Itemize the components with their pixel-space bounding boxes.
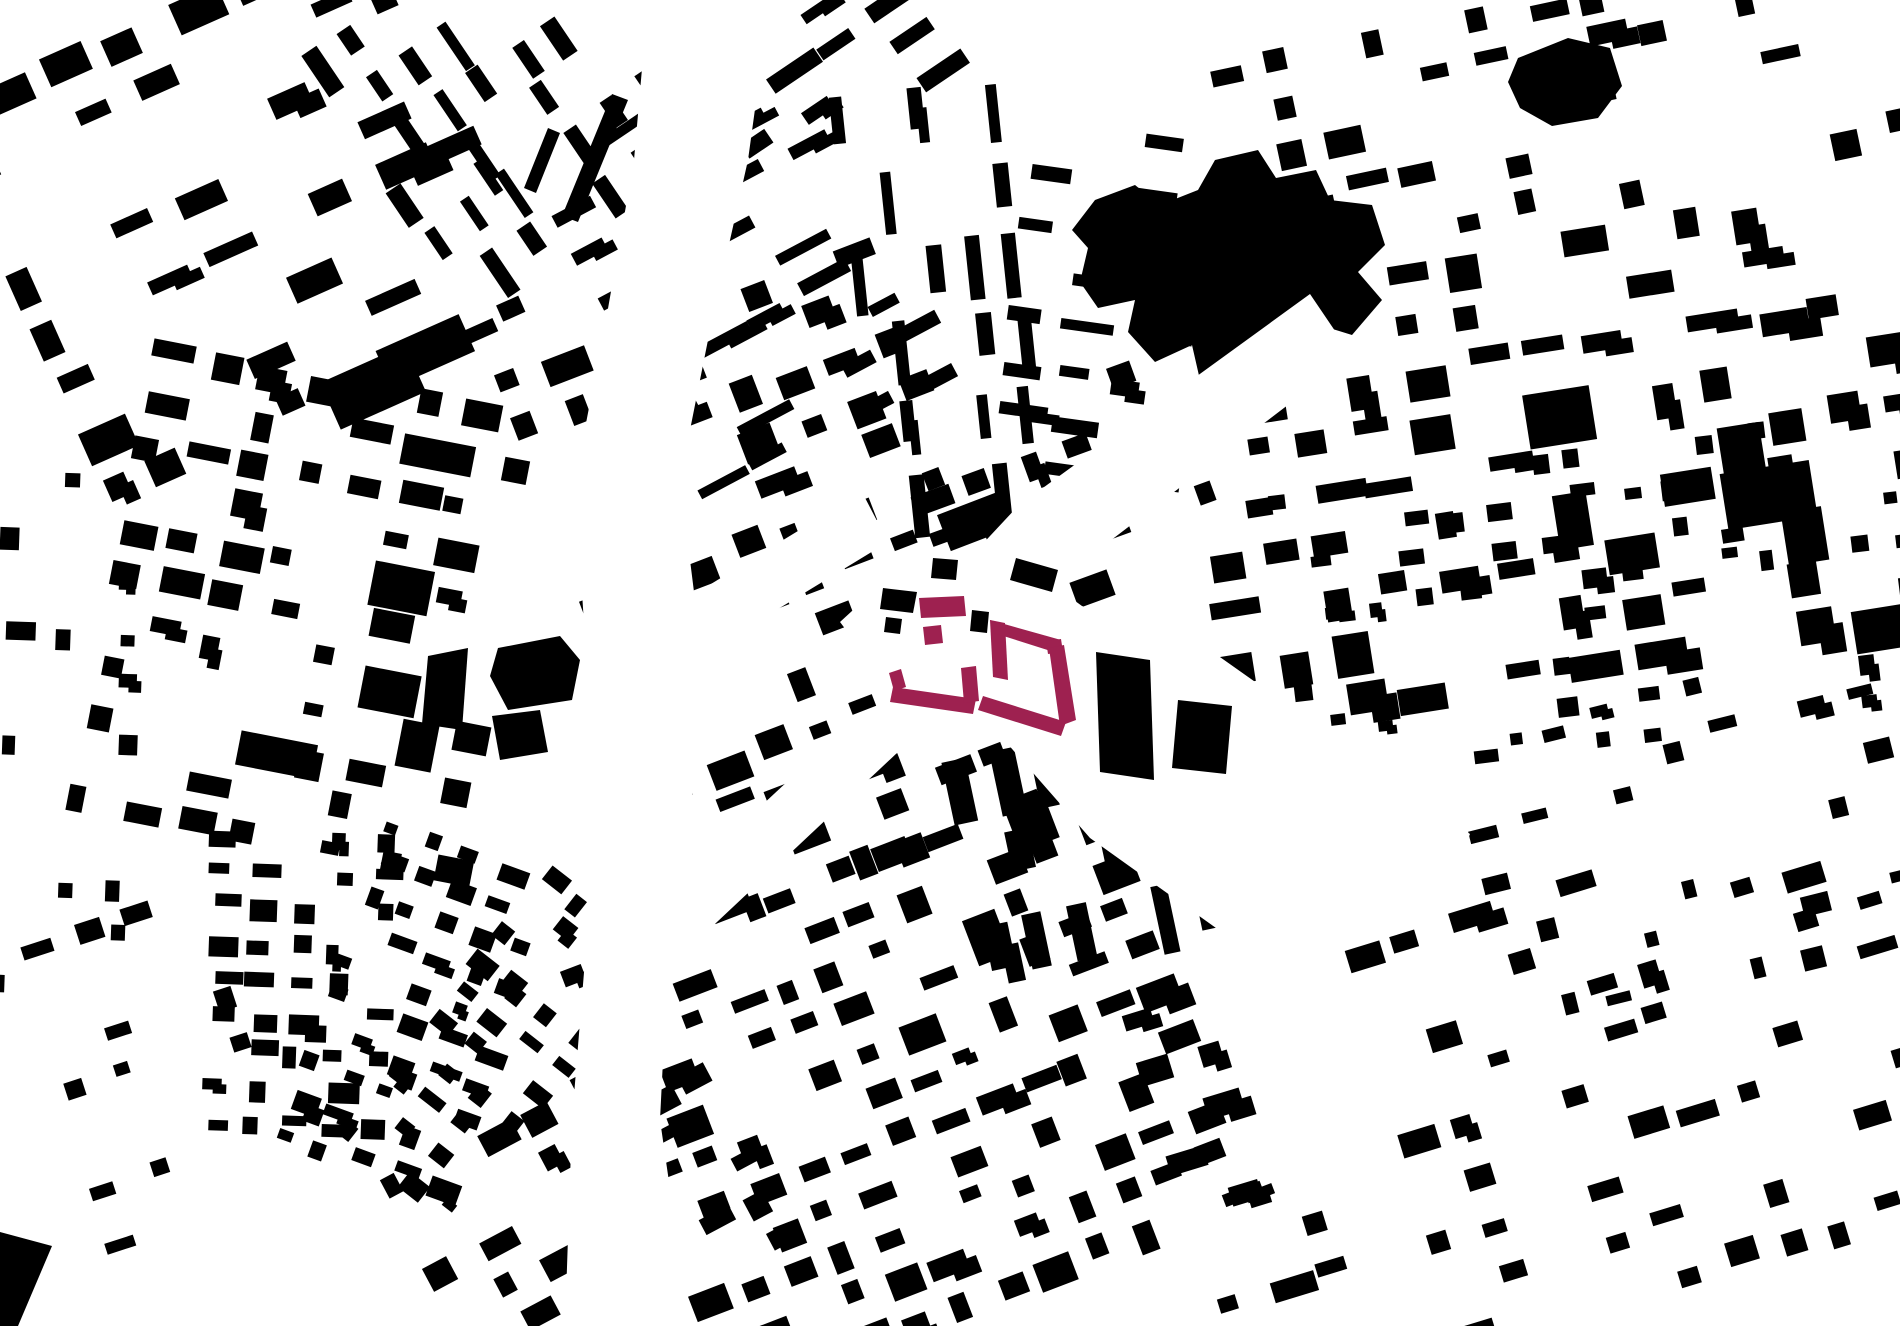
building: [1621, 564, 1643, 582]
building-annex: [1846, 404, 1871, 431]
building: [377, 834, 395, 853]
building: [0, 974, 5, 992]
building: [299, 461, 322, 484]
building: [1883, 491, 1897, 504]
building-annex: [1370, 692, 1401, 722]
building: [417, 388, 443, 417]
building: [87, 704, 114, 732]
building-annex: [1870, 700, 1882, 712]
building: [58, 883, 73, 898]
building: [1573, 525, 1590, 545]
building: [1445, 253, 1482, 293]
building: [1460, 584, 1482, 601]
riverside-block-b: [492, 710, 548, 760]
building: [1673, 207, 1700, 239]
building: [1522, 385, 1597, 449]
building: [249, 899, 277, 922]
building: [246, 940, 269, 955]
building: [254, 1014, 278, 1033]
building: [1398, 548, 1425, 566]
building: [1721, 547, 1738, 559]
building: [1409, 414, 1455, 455]
east-slab: [1172, 700, 1232, 774]
building-annex: [213, 1084, 227, 1094]
building: [244, 972, 274, 988]
building: [313, 644, 335, 665]
building: [1643, 728, 1662, 743]
west-hall: [422, 648, 468, 730]
building: [1557, 696, 1580, 718]
building: [1584, 605, 1606, 620]
building: [1513, 662, 1535, 676]
building: [306, 376, 336, 406]
building: [1415, 587, 1433, 606]
building: [215, 893, 242, 906]
building: [328, 1082, 360, 1104]
building: [1596, 731, 1611, 748]
building: [323, 1050, 342, 1062]
building: [1262, 47, 1288, 73]
building: [1453, 305, 1479, 332]
building: [1210, 552, 1246, 584]
building: [1486, 502, 1513, 522]
building: [1638, 686, 1660, 702]
building: [1440, 512, 1465, 534]
building: [65, 473, 81, 488]
building-annex: [1124, 389, 1145, 405]
building: [0, 527, 20, 550]
building: [1406, 365, 1451, 402]
building-annex: [1868, 664, 1881, 682]
building: [209, 831, 236, 848]
building: [282, 1046, 296, 1068]
riverside-block-a: [490, 636, 580, 710]
building: [367, 1008, 394, 1020]
plaza-north-block-a: [931, 558, 958, 580]
building: [1561, 448, 1579, 468]
building: [1293, 681, 1313, 702]
building: [118, 735, 137, 756]
building-annex: [305, 1025, 327, 1043]
building: [55, 629, 71, 650]
building: [1553, 657, 1572, 676]
building: [360, 1119, 385, 1140]
building: [1330, 713, 1346, 726]
building: [294, 935, 312, 953]
building: [1532, 454, 1551, 475]
site-bar-north: [919, 596, 966, 618]
map-canvas: [0, 0, 1900, 1326]
building: [251, 1039, 279, 1056]
building-annex: [1596, 576, 1615, 594]
building: [1622, 594, 1665, 631]
building: [131, 435, 159, 462]
building-annex: [1377, 609, 1387, 622]
building: [2, 735, 15, 754]
building: [1695, 435, 1714, 455]
building: [1491, 541, 1517, 561]
building: [105, 880, 120, 902]
building: [294, 904, 315, 924]
building: [1787, 560, 1821, 598]
building: [1699, 366, 1731, 402]
building: [215, 971, 243, 985]
building: [1806, 540, 1827, 558]
building: [1624, 487, 1642, 500]
building: [1768, 408, 1806, 446]
building: [1830, 129, 1862, 161]
building: [282, 1115, 307, 1126]
building: [1759, 550, 1774, 571]
building: [337, 873, 353, 886]
building-annex: [126, 583, 136, 595]
building: [208, 936, 238, 957]
building: [242, 1117, 258, 1135]
building: [1332, 631, 1375, 679]
building: [252, 863, 281, 878]
building: [208, 1120, 228, 1131]
building: [1404, 510, 1429, 527]
building: [1510, 732, 1523, 745]
figure-ground-map: [0, 0, 1900, 1326]
building: [1395, 314, 1418, 336]
east-mass: [1096, 652, 1154, 780]
building: [208, 863, 229, 874]
building-annex: [269, 380, 292, 404]
building-annex: [339, 842, 349, 857]
site-l-right-arm: [961, 666, 979, 703]
building-annex: [1818, 622, 1847, 655]
building: [440, 778, 471, 809]
building: [1542, 535, 1568, 554]
building: [111, 925, 126, 941]
building: [120, 635, 134, 647]
building-annex: [1338, 610, 1355, 622]
block-east-of-bar: [970, 610, 989, 633]
building: [6, 621, 36, 640]
building: [1294, 429, 1327, 457]
small-block-west: [884, 617, 902, 634]
building-annex: [128, 681, 141, 693]
building: [211, 352, 245, 385]
building: [249, 1081, 266, 1103]
building: [1747, 421, 1765, 439]
building: [1378, 570, 1407, 594]
building: [1850, 535, 1869, 553]
building: [501, 457, 530, 485]
block-west-of-bar: [880, 588, 917, 613]
building: [1672, 517, 1689, 537]
building: [1793, 506, 1813, 527]
building: [378, 903, 394, 920]
building: [291, 977, 313, 989]
building: [1660, 480, 1678, 502]
building: [236, 450, 268, 481]
building: [1268, 494, 1286, 510]
site-square: [923, 625, 943, 645]
building: [1247, 436, 1270, 455]
building-annex: [1386, 725, 1397, 735]
